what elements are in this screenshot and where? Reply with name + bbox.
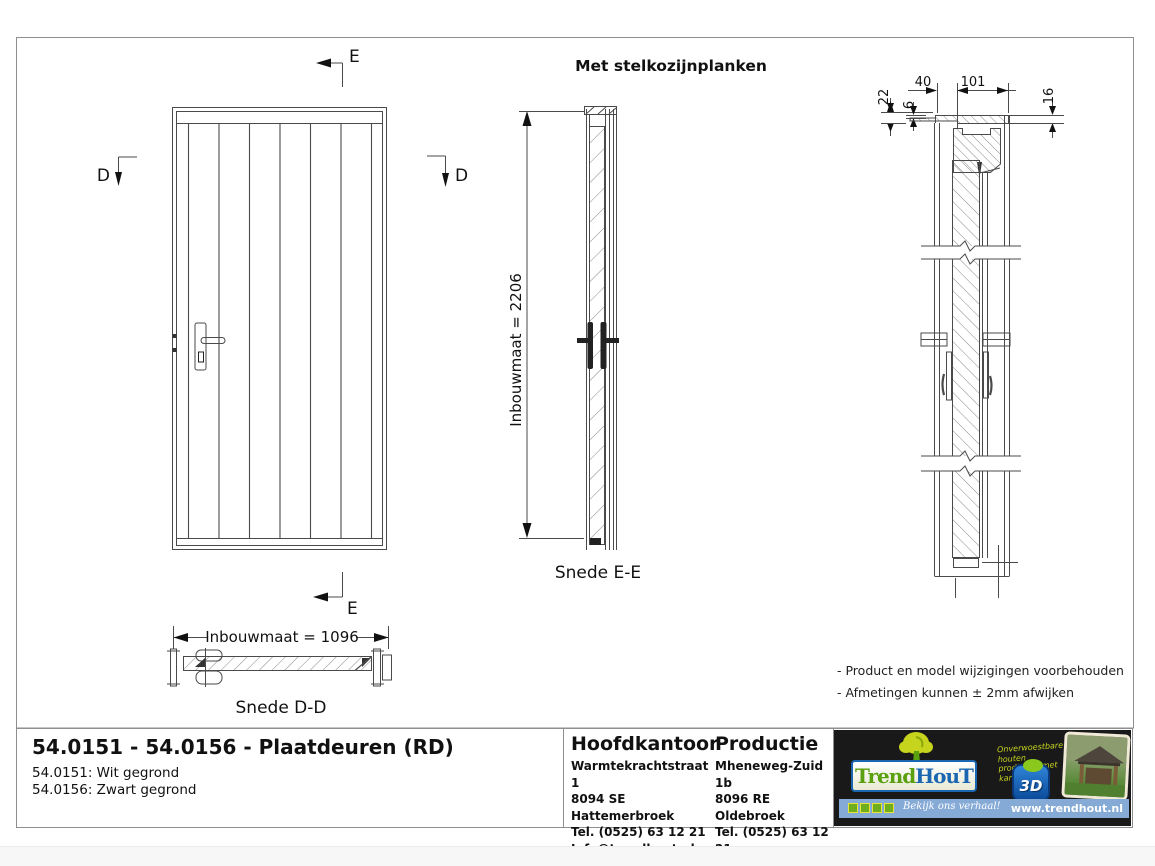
3d-badge-leaf-icon (1023, 759, 1043, 772)
trendhout-logo-panel: TrendHouT Onverwoestbare houten producte… (834, 730, 1131, 826)
drawing-title: Met stelkozijnplanken (575, 57, 767, 75)
note-afmetingen: - Afmetingen kunnen ± 2mm afwijken (837, 685, 1074, 700)
marker-e-bottom-label: E (347, 599, 358, 619)
tree-icon (893, 731, 940, 763)
dim-40: 40 (915, 75, 932, 90)
dim-6: 6 (902, 101, 917, 109)
variant-wit: 54.0151: Wit gegrond (32, 765, 179, 781)
bottom-strip (0, 846, 1155, 866)
marker-d-right-label: D (455, 166, 468, 186)
section-ee (519, 107, 619, 551)
hoofdkantoor-street: Warmtekrachtstraat 1 (571, 758, 717, 791)
3d-badge: 3D (1012, 764, 1050, 802)
cta-text: Bekijk ons verhaal! (903, 801, 1001, 812)
hoofdkantoor-block: Hoofdkantoor Warmtekrachtstraat 1 8094 S… (571, 733, 717, 857)
hoofdkantoor-city: 8094 SE Hattemerbroek (571, 791, 717, 824)
social-icon-3 (872, 803, 882, 813)
dim-22: 22 (877, 89, 892, 106)
wordmark-hout: HouT (915, 764, 973, 788)
dimension-inbouwmaat-2206: Inbouwmaat = 2206 (507, 273, 525, 427)
social-icon-4 (884, 803, 894, 813)
social-icon-2 (860, 803, 870, 813)
website-link[interactable]: www.trendhout.nl (1011, 802, 1123, 815)
productie-heading: Productie (715, 733, 833, 755)
note-product: - Product en model wijzigingen voorbehou… (837, 663, 1124, 678)
gazebo-photo (1061, 731, 1130, 800)
social-icon-1 (848, 803, 858, 813)
productie-street: Mheneweg-Zuid 1b (715, 758, 833, 791)
productie-city: 8096 RE Oldebroek (715, 791, 833, 824)
marker-d-left-label: D (97, 166, 110, 186)
logo-bottom-bar: Bekijk ons verhaal! www.trendhout.nl (839, 799, 1129, 818)
dimension-inbouwmaat-1096: Inbouwmaat = 1096 (205, 628, 359, 646)
marker-e-top-label: E (349, 47, 360, 67)
trendhout-wordmark: TrendHouT (851, 760, 977, 792)
hoofdkantoor-phone: Tel. (0525) 63 12 21 (571, 824, 717, 841)
dim-101: 101 (961, 75, 986, 90)
dim-16: 16 (1042, 88, 1057, 105)
variant-zwart: 54.0156: Zwart gegrond (32, 782, 196, 798)
front-view (173, 108, 387, 550)
hoofdkantoor-heading: Hoofdkantoor (571, 733, 717, 755)
section-ee-label: Snede E-E (555, 563, 641, 583)
drawing-number-title: 54.0151 - 54.0156 - Plaatdeuren (RD) (32, 735, 454, 759)
title-block-divider-1 (563, 729, 564, 827)
door-handle (195, 323, 225, 370)
drawing-sheet: Met stelkozijnplanken (0, 0, 1155, 866)
wordmark-trend: Trend (855, 764, 915, 788)
frame-detail (881, 83, 1064, 598)
3d-badge-label: 3D (1014, 777, 1048, 795)
section-dd-label: Snede D-D (236, 698, 327, 718)
section-markers (115, 59, 449, 602)
